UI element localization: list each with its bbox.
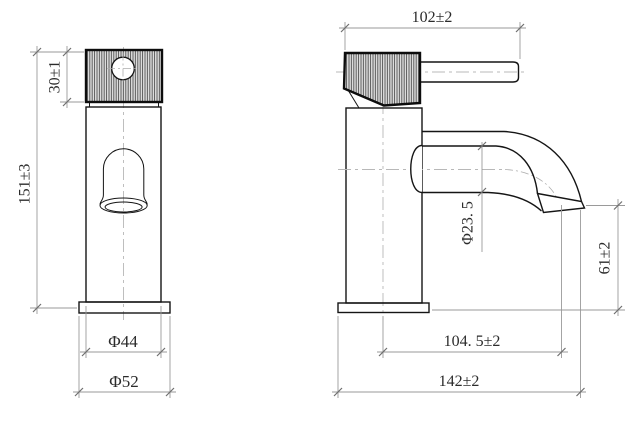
side-base-flange bbox=[338, 303, 429, 313]
dim-label-spout-reach: 104. 5±2 bbox=[444, 333, 501, 350]
spout-cap-mask bbox=[411, 146, 422, 193]
dim-label-base-diameter: Φ52 bbox=[109, 372, 138, 391]
side-view bbox=[336, 53, 585, 320]
dim-label-body-diameter: Φ44 bbox=[108, 332, 138, 351]
dim-handle-height: 30±1 bbox=[30, 46, 84, 108]
side-body bbox=[346, 108, 422, 303]
dim-spout-diameter: Φ23. 5 bbox=[460, 142, 486, 252]
dim-label-outlet-height: 61±2 bbox=[597, 242, 614, 275]
dim-label-overall-depth: 142±2 bbox=[439, 373, 480, 390]
front-view bbox=[79, 47, 170, 320]
spout-outlet-rim bbox=[538, 194, 585, 213]
dim-label-handle-length: 102±2 bbox=[412, 9, 453, 26]
technical-drawing-page: 30±1 151±3 Φ44 Φ52 102±2 bbox=[0, 0, 643, 421]
front-base-flange bbox=[79, 302, 170, 313]
side-knob-knurl bbox=[344, 53, 420, 106]
spout-top-outer bbox=[422, 132, 582, 202]
faucet-technical-drawing: 30±1 151±3 Φ44 Φ52 102±2 bbox=[0, 0, 643, 421]
dim-label-overall-height: 151±3 bbox=[17, 164, 34, 205]
dim-label-handle-height: 30±1 bbox=[47, 61, 64, 94]
dim-handle-length: 102±2 bbox=[339, 9, 526, 59]
dim-label-spout-diameter: Φ23. 5 bbox=[460, 201, 477, 245]
